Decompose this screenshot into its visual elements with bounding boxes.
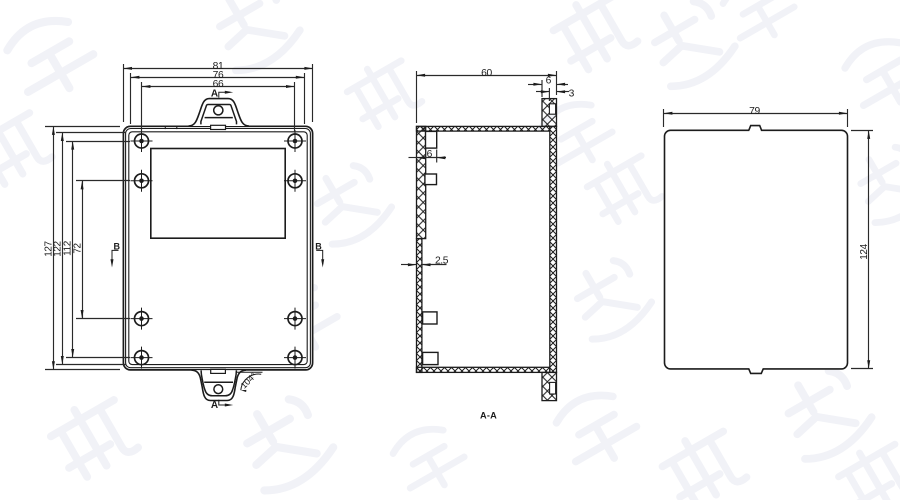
- svg-text:104°: 104°: [239, 371, 259, 391]
- svg-text:A: A: [211, 400, 218, 411]
- svg-text:79: 79: [749, 106, 760, 117]
- svg-text:124: 124: [859, 243, 870, 259]
- svg-text:72: 72: [73, 243, 84, 254]
- svg-text:6: 6: [546, 76, 552, 87]
- svg-text:60: 60: [481, 68, 492, 79]
- svg-text:3: 3: [569, 88, 575, 99]
- svg-text:6: 6: [427, 149, 433, 160]
- svg-text:66: 66: [213, 79, 224, 90]
- svg-text:2.5: 2.5: [435, 256, 449, 267]
- svg-text:A-A: A-A: [480, 411, 497, 421]
